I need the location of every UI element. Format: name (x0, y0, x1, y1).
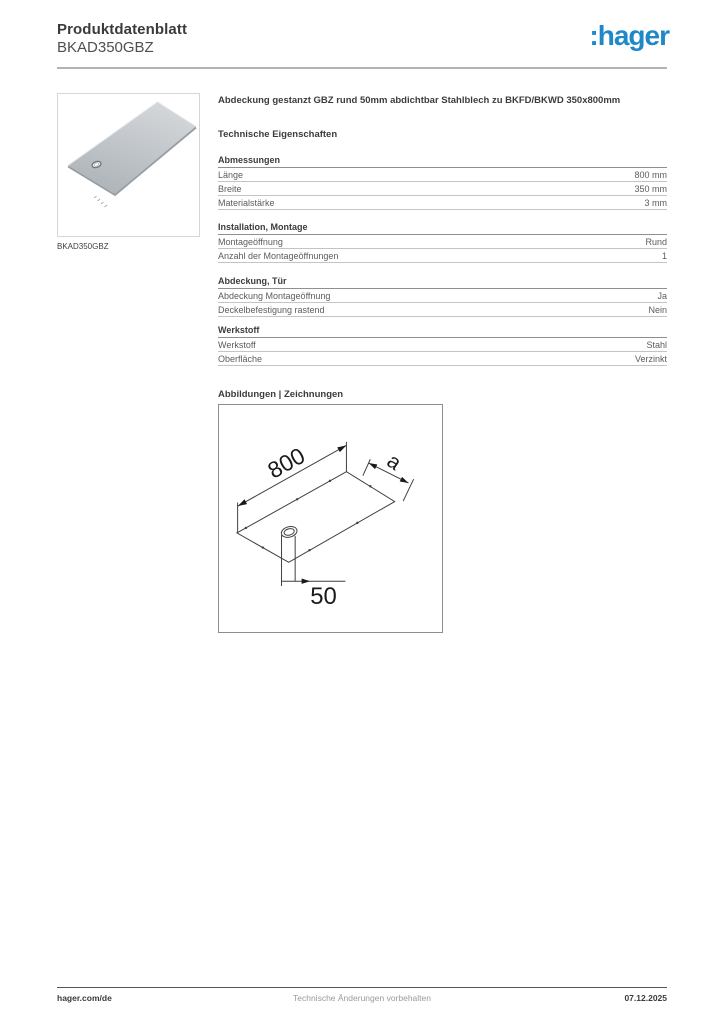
product-photo-caption: BKAD350GBZ (57, 242, 109, 251)
technical-drawing: 800 a 50 (218, 404, 443, 633)
table-row: Materialstärke 3 mm (218, 196, 667, 210)
arrowhead (337, 445, 346, 452)
extension-line (363, 459, 370, 475)
product-photo (57, 93, 200, 237)
row-value: 1 (662, 251, 667, 261)
product-title: Abdeckung gestanzt GBZ rund 50mm abdicht… (218, 95, 667, 107)
section-title: Installation, Montage (218, 222, 667, 235)
row-value: Verzinkt (635, 354, 667, 364)
row-label: Länge (218, 170, 243, 180)
technical-properties-heading: Technische Eigenschaften (218, 129, 337, 140)
row-label: Oberfläche (218, 354, 262, 364)
footer-divider (57, 987, 667, 988)
arrowhead (369, 463, 378, 469)
plate-marking (94, 196, 107, 207)
arrowhead (302, 579, 310, 584)
table-row: Abdeckung Montageöffnung Ja (218, 289, 667, 303)
row-value: Nein (648, 305, 667, 315)
header-product-reference: BKAD350GBZ (57, 39, 154, 56)
drawings-heading: Abbildungen | Zeichnungen (218, 389, 343, 400)
table-row: Werkstoff Stahl (218, 338, 667, 352)
footer-disclaimer: Technische Änderungen vorbehalten (0, 993, 724, 1003)
section-title: Werkstoff (218, 325, 667, 338)
section-cover-door: Abdeckung, Tür Abdeckung Montageöffnung … (218, 276, 667, 317)
dimension-label-50: 50 (310, 583, 337, 610)
table-row: Montageöffnung Rund (218, 235, 667, 249)
table-row: Länge 800 mm (218, 168, 667, 182)
arrowhead (400, 477, 409, 483)
product-photo-plate-image (58, 94, 199, 236)
row-label: Anzahl der Montageöffnungen (218, 251, 338, 261)
section-title: Abmessungen (218, 155, 667, 168)
table-row: Anzahl der Montageöffnungen 1 (218, 249, 667, 263)
row-value: Ja (657, 291, 667, 301)
section-installation: Installation, Montage Montageöffnung Run… (218, 222, 667, 263)
hager-logo: :hager (589, 20, 669, 52)
row-label: Abdeckung Montageöffnung (218, 291, 330, 301)
table-row: Breite 350 mm (218, 182, 667, 196)
document-type-title: Produktdatenblatt (57, 21, 187, 38)
row-value: 350 mm (634, 184, 667, 194)
footer-date: 07.12.2025 (624, 993, 667, 1003)
row-value: Stahl (646, 340, 667, 350)
section-material: Werkstoff Werkstoff Stahl Oberfläche Ver… (218, 325, 667, 366)
table-row: Oberfläche Verzinkt (218, 352, 667, 366)
table-row: Deckelbefestigung rastend Nein (218, 303, 667, 317)
dimension-label-800: 800 (263, 442, 309, 483)
row-label: Deckelbefestigung rastend (218, 305, 325, 315)
row-label: Materialstärke (218, 198, 275, 208)
row-value: Rund (645, 237, 667, 247)
section-title: Abdeckung, Tür (218, 276, 667, 289)
row-label: Breite (218, 184, 242, 194)
row-label: Montageöffnung (218, 237, 283, 247)
row-value: 800 mm (634, 170, 667, 180)
section-dimensions: Abmessungen Länge 800 mm Breite 350 mm M… (218, 155, 667, 210)
header-divider (57, 67, 667, 69)
row-label: Werkstoff (218, 340, 256, 350)
row-value: 3 mm (645, 198, 668, 208)
technical-drawing-svg: 800 a 50 (219, 405, 442, 632)
arrowhead (238, 499, 247, 506)
